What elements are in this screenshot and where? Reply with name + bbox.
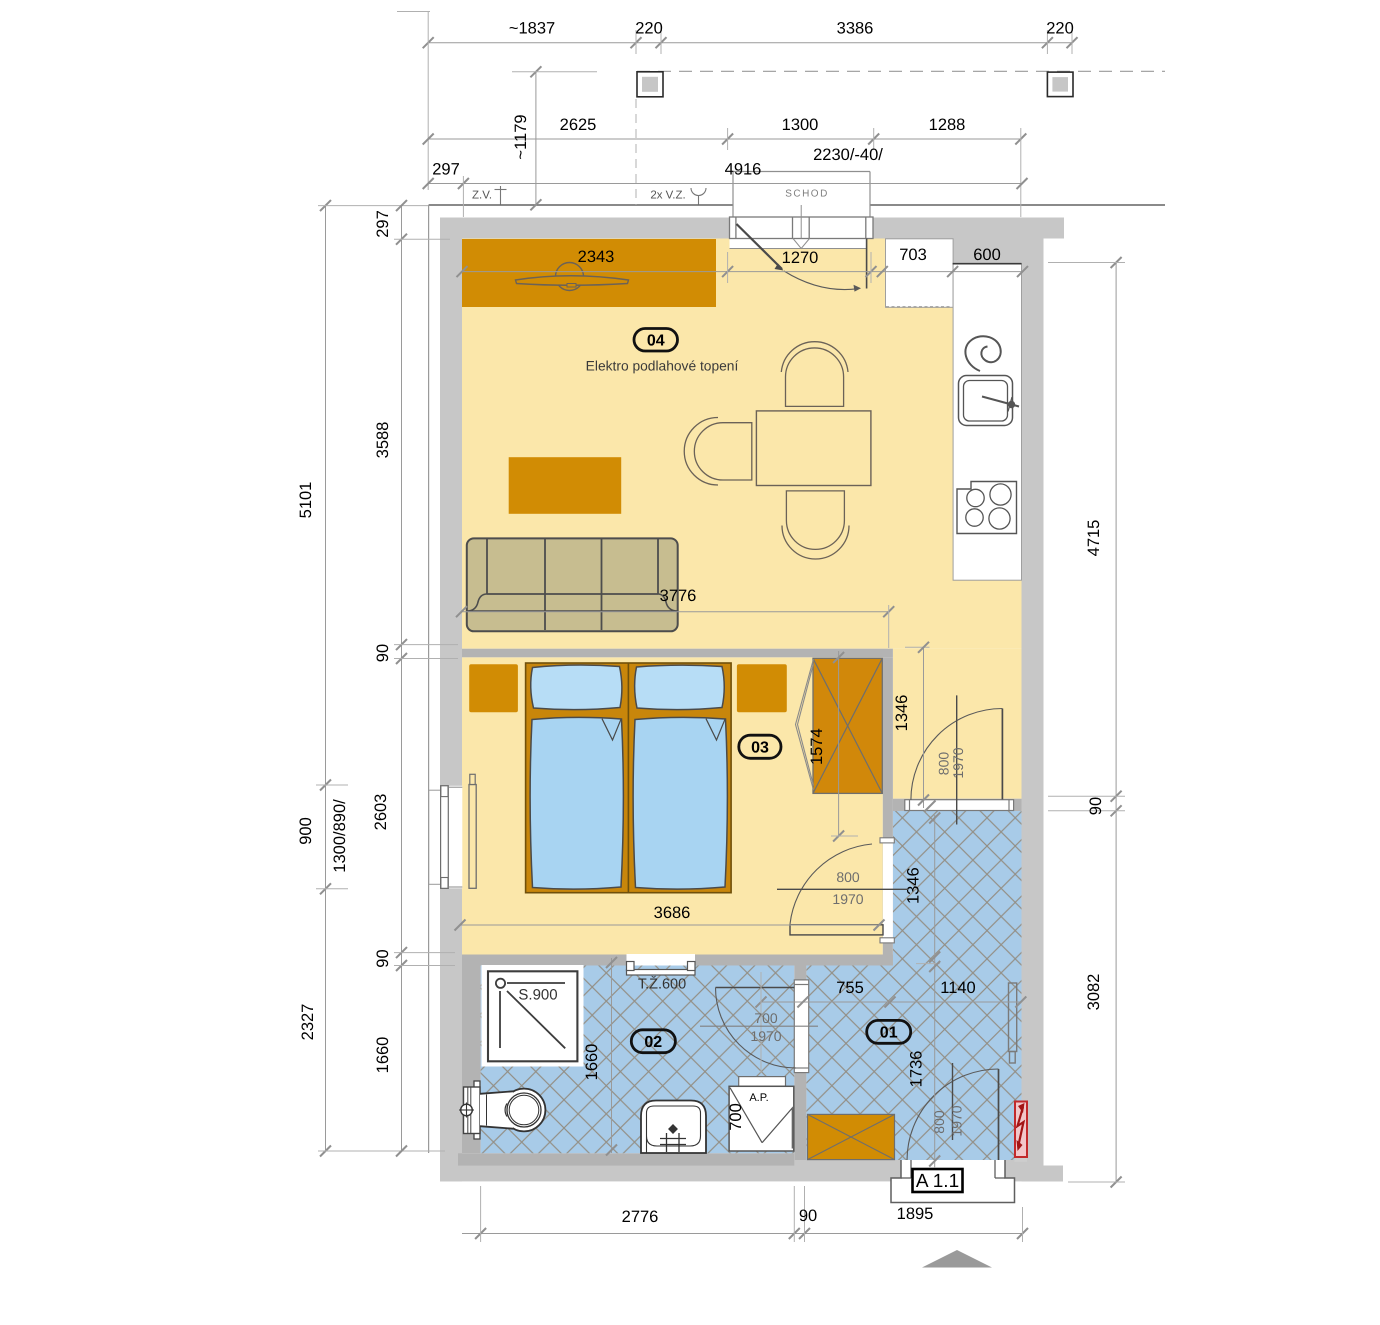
- svg-text:2776: 2776: [622, 1208, 659, 1226]
- svg-text:3686: 3686: [654, 904, 691, 922]
- svg-text:2x V.Z.: 2x V.Z.: [650, 190, 685, 202]
- svg-text:02: 02: [644, 1034, 662, 1051]
- svg-text:4916: 4916: [725, 161, 762, 179]
- svg-text:703: 703: [899, 246, 927, 264]
- svg-text:2343: 2343: [578, 248, 615, 266]
- svg-text:1895: 1895: [897, 1205, 934, 1223]
- svg-text:800: 800: [931, 1110, 947, 1134]
- svg-text:3082: 3082: [1085, 974, 1103, 1011]
- svg-text:2603: 2603: [372, 794, 390, 831]
- svg-text:220: 220: [1046, 20, 1074, 38]
- svg-text:1660: 1660: [374, 1037, 392, 1074]
- svg-text:3588: 3588: [374, 422, 392, 459]
- svg-text:T.Ž.600: T.Ž.600: [638, 976, 686, 993]
- svg-text:5101: 5101: [297, 482, 315, 519]
- svg-text:1140: 1140: [940, 979, 975, 997]
- svg-text:04: 04: [647, 333, 665, 350]
- svg-text:~1179: ~1179: [512, 114, 530, 159]
- svg-text:1970: 1970: [750, 1028, 781, 1044]
- svg-text:297: 297: [432, 161, 460, 179]
- svg-text:~1837: ~1837: [509, 20, 555, 38]
- svg-text:90: 90: [374, 949, 392, 967]
- svg-text:03: 03: [751, 740, 769, 757]
- svg-text:900: 900: [297, 817, 315, 845]
- svg-text:90: 90: [1087, 797, 1105, 815]
- svg-text:1346: 1346: [905, 867, 923, 904]
- svg-text:SCHOD: SCHOD: [785, 189, 829, 200]
- svg-text:1970: 1970: [950, 747, 966, 778]
- svg-text:2625: 2625: [560, 116, 597, 134]
- svg-text:1970: 1970: [832, 891, 863, 907]
- svg-text:700: 700: [727, 1103, 745, 1131]
- svg-text:Z.V.: Z.V.: [472, 190, 492, 202]
- svg-text:220: 220: [635, 20, 663, 38]
- svg-text:90: 90: [374, 644, 392, 662]
- svg-text:90: 90: [799, 1207, 817, 1225]
- svg-text:A 1.1: A 1.1: [916, 1171, 959, 1192]
- svg-text:800: 800: [836, 869, 860, 885]
- svg-text:1300/890/: 1300/890/: [331, 799, 349, 873]
- svg-text:3776: 3776: [660, 587, 697, 605]
- svg-text:1346: 1346: [893, 695, 911, 732]
- svg-text:1660: 1660: [583, 1044, 601, 1081]
- svg-text:1270: 1270: [782, 249, 819, 267]
- svg-text:1288: 1288: [929, 116, 966, 134]
- svg-text:1300: 1300: [782, 116, 819, 134]
- svg-text:2327: 2327: [299, 1004, 317, 1041]
- svg-text:2230/-40/: 2230/-40/: [813, 146, 883, 164]
- svg-text:297: 297: [374, 210, 392, 238]
- svg-text:01: 01: [880, 1025, 898, 1042]
- svg-text:755: 755: [836, 979, 864, 997]
- svg-text:1970: 1970: [949, 1105, 965, 1136]
- svg-text:600: 600: [973, 246, 1001, 264]
- svg-text:700: 700: [754, 1010, 778, 1026]
- svg-text:4715: 4715: [1085, 520, 1103, 557]
- svg-text:1574: 1574: [808, 728, 826, 765]
- svg-text:A.P.: A.P.: [749, 1092, 768, 1104]
- svg-text:3386: 3386: [837, 20, 874, 38]
- svg-text:S.900: S.900: [518, 987, 557, 1004]
- svg-text:Elektro podlahové topení: Elektro podlahové topení: [586, 359, 739, 374]
- svg-text:1736: 1736: [908, 1051, 926, 1088]
